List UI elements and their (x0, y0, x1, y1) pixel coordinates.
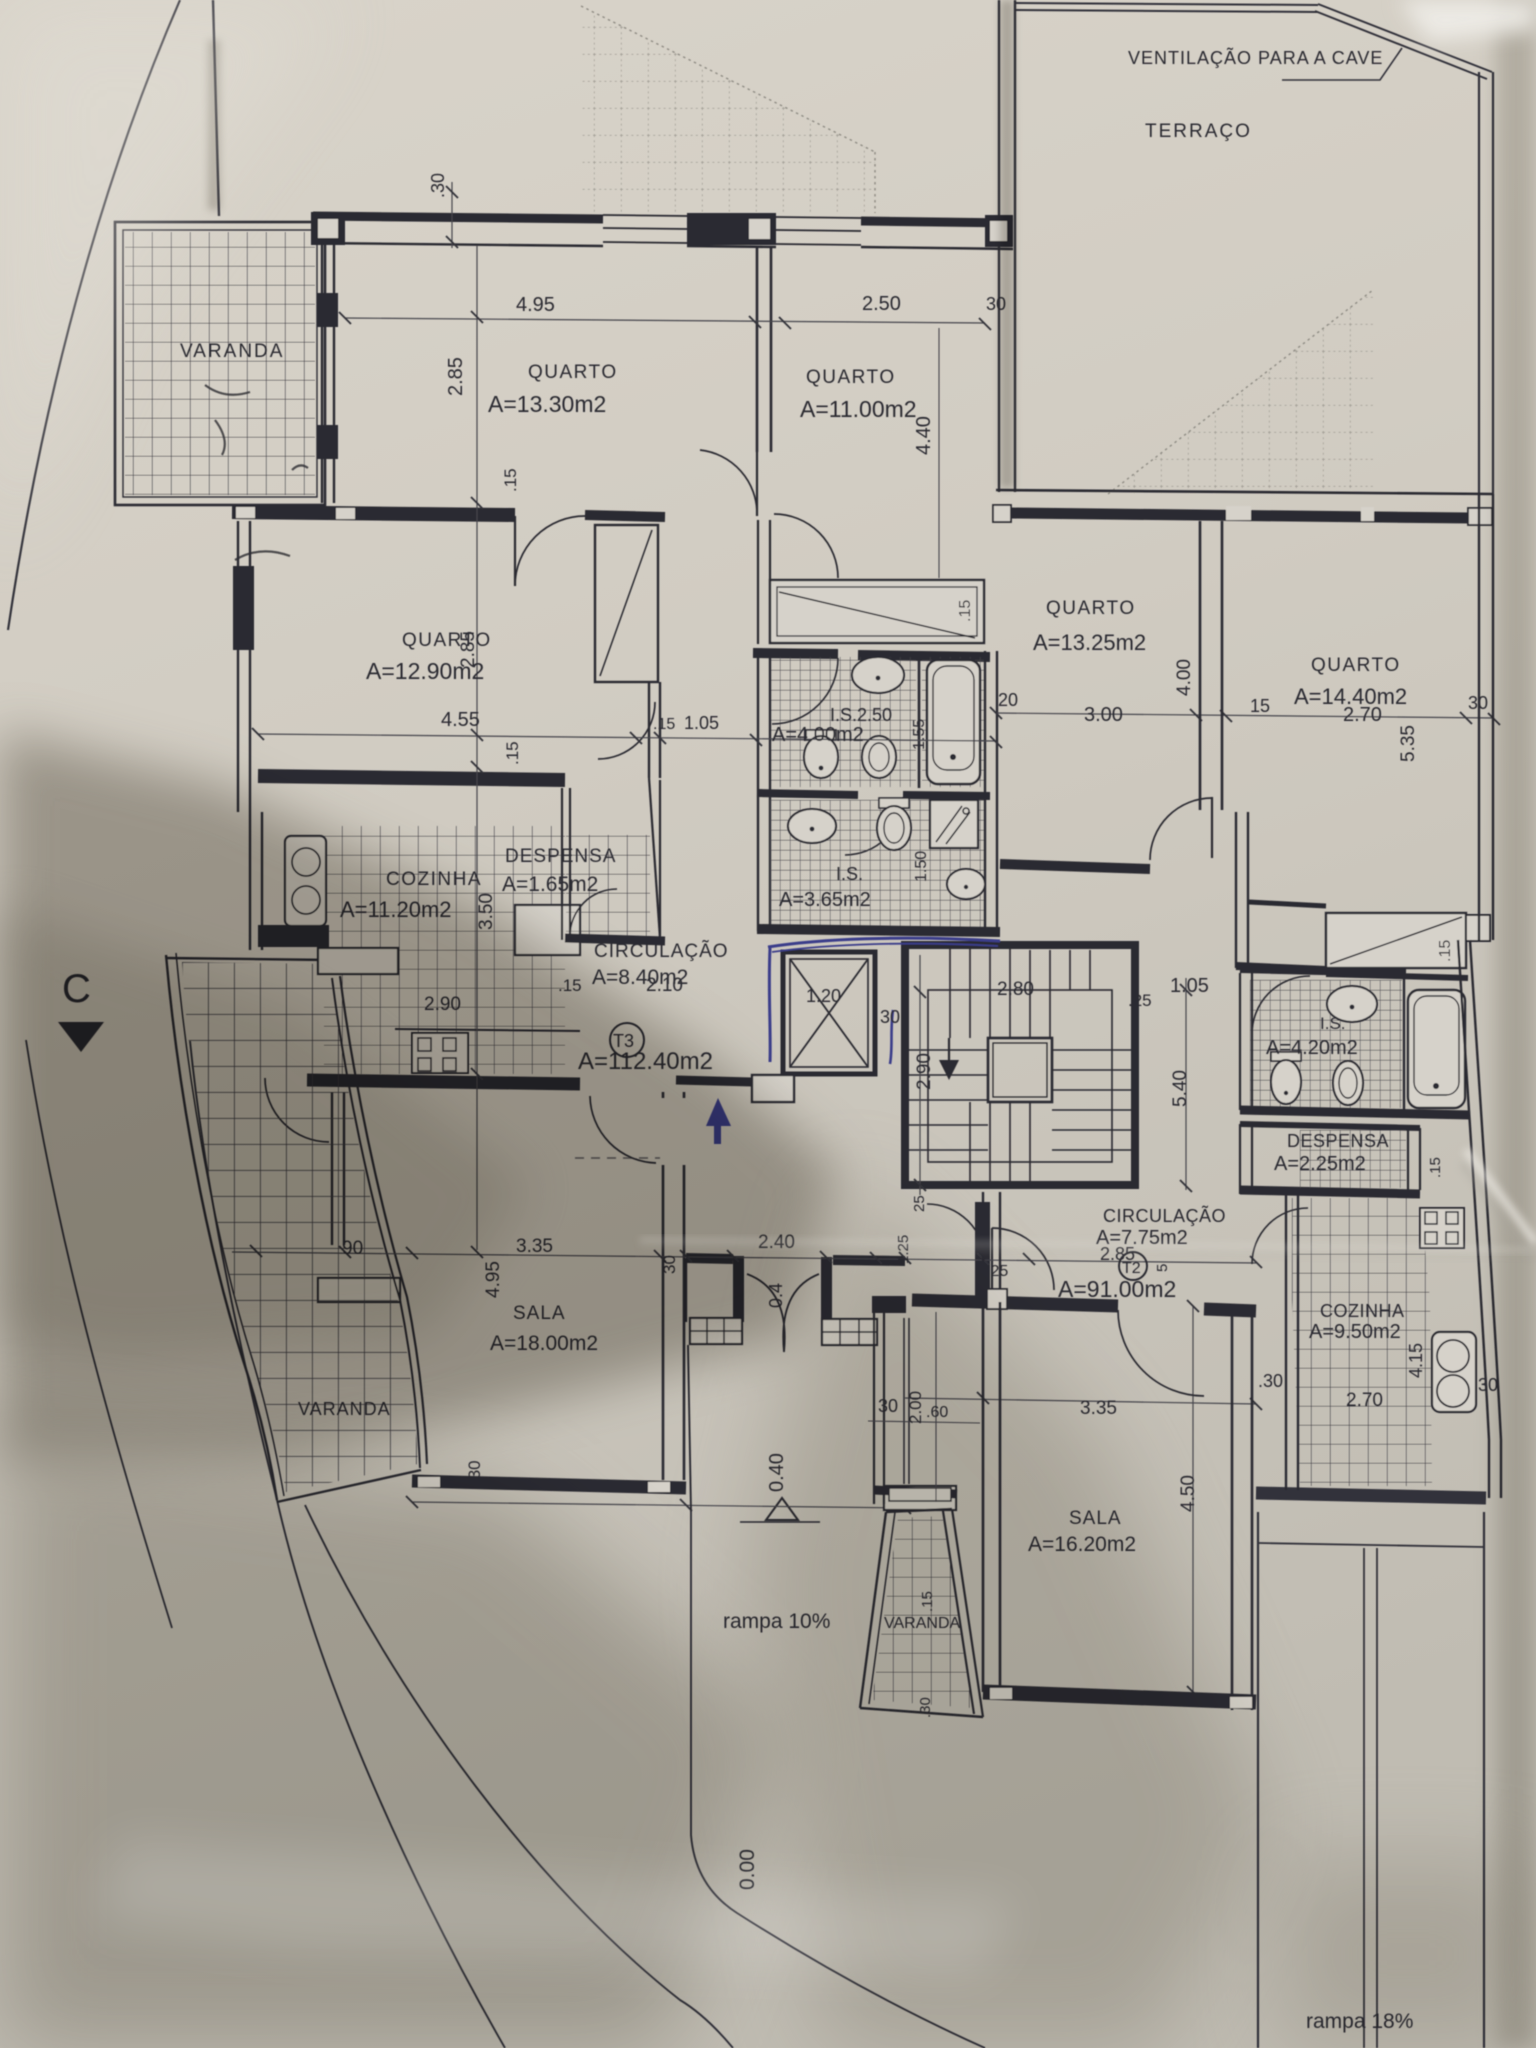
svg-text:2.90: 2.90 (914, 1053, 935, 1090)
svg-text:3.35: 3.35 (1080, 1398, 1117, 1419)
svg-text:4.15: 4.15 (1406, 1343, 1426, 1378)
svg-text:VARANDA: VARANDA (180, 341, 284, 362)
svg-text:30: 30 (880, 1007, 900, 1027)
svg-text:5.35: 5.35 (1398, 725, 1419, 762)
svg-text:5.40: 5.40 (1170, 1070, 1191, 1107)
svg-text:.30: .30 (1258, 1371, 1283, 1391)
svg-text:I.S.: I.S. (1320, 1014, 1346, 1033)
svg-text:25: 25 (911, 1195, 928, 1212)
svg-text:4.00: 4.00 (1174, 659, 1195, 696)
svg-text:30: 30 (1478, 1375, 1498, 1395)
svg-text:A=13.30m2: A=13.30m2 (488, 391, 606, 417)
svg-text:TERRAÇO: TERRAÇO (1145, 121, 1252, 142)
svg-text:I.S.2.50: I.S.2.50 (830, 705, 892, 725)
svg-text:T2: T2 (1122, 1260, 1141, 1277)
svg-text:QUARTO: QUARTO (1311, 655, 1401, 676)
svg-text:4.55: 4.55 (441, 709, 480, 731)
svg-text:DESPENSA: DESPENSA (505, 846, 616, 867)
svg-text:.25: .25 (986, 1263, 1008, 1280)
svg-text:.30: .30 (465, 1460, 484, 1484)
svg-text:A=8.40m2: A=8.40m2 (592, 966, 688, 989)
svg-text:A=2.25m2: A=2.25m2 (1274, 1153, 1366, 1175)
svg-text:.15: .15 (1437, 940, 1454, 962)
svg-text:A=4.00m2: A=4.00m2 (772, 724, 864, 746)
svg-text:.15: .15 (957, 600, 974, 622)
svg-text:2.80: 2.80 (997, 979, 1034, 1000)
svg-text:A=3.65m2: A=3.65m2 (779, 889, 871, 911)
svg-text:1.05: 1.05 (1170, 975, 1209, 997)
svg-text:A=4.20m2: A=4.20m2 (1266, 1037, 1358, 1059)
svg-text:15: 15 (1250, 696, 1270, 716)
svg-text:20: 20 (998, 690, 1018, 710)
svg-text:I.S.: I.S. (836, 864, 863, 884)
svg-text:A=1.65m2: A=1.65m2 (502, 873, 598, 896)
svg-text:A=13.25m2: A=13.25m2 (1033, 630, 1146, 655)
svg-text:QUARTO: QUARTO (806, 367, 896, 388)
svg-text:4.95: 4.95 (516, 294, 555, 316)
svg-text:2.50: 2.50 (862, 293, 901, 315)
svg-text:DESPENSA: DESPENSA (1287, 1131, 1389, 1151)
svg-text:.15: .15 (503, 741, 522, 765)
svg-text:VENTILAÇÃO PARA A CAVE: VENTILAÇÃO PARA A CAVE (1128, 47, 1383, 68)
svg-text:4.40: 4.40 (913, 416, 935, 455)
svg-text:QUARTO: QUARTO (1046, 598, 1136, 619)
svg-text:2.70: 2.70 (1346, 1390, 1383, 1411)
svg-text:30: 30 (1468, 693, 1488, 713)
svg-text:2.70: 2.70 (1343, 704, 1382, 726)
svg-text:2.85: 2.85 (458, 631, 479, 668)
svg-text:CIRCULAÇÃO: CIRCULAÇÃO (1103, 1205, 1226, 1226)
svg-text:.25: .25 (1128, 991, 1152, 1010)
svg-text:.15: .15 (1427, 1157, 1444, 1178)
svg-text:2.85: 2.85 (445, 357, 467, 396)
svg-text:1.20: 1.20 (806, 986, 841, 1006)
svg-text:1.05: 1.05 (684, 713, 719, 733)
svg-text:.15: .15 (501, 468, 520, 492)
svg-text:3.00: 3.00 (1084, 704, 1123, 726)
svg-text:A=11.00m2: A=11.00m2 (800, 396, 917, 422)
svg-text:5: 5 (1154, 1264, 1171, 1272)
svg-text:4.50: 4.50 (1178, 1475, 1199, 1512)
svg-text:QUARTO: QUARTO (528, 362, 618, 383)
svg-text:.15: .15 (653, 716, 675, 733)
svg-text:CIRCULAÇÃO: CIRCULAÇÃO (594, 940, 729, 962)
svg-text:1.55: 1.55 (911, 719, 928, 750)
svg-text:A=9.50m2: A=9.50m2 (1309, 1321, 1401, 1343)
svg-text:1.50: 1.50 (913, 851, 930, 882)
svg-text:A=91.00m2: A=91.00m2 (1058, 1276, 1176, 1302)
svg-text:COZINHA: COZINHA (1320, 1301, 1405, 1321)
svg-text:.30: .30 (428, 173, 448, 198)
